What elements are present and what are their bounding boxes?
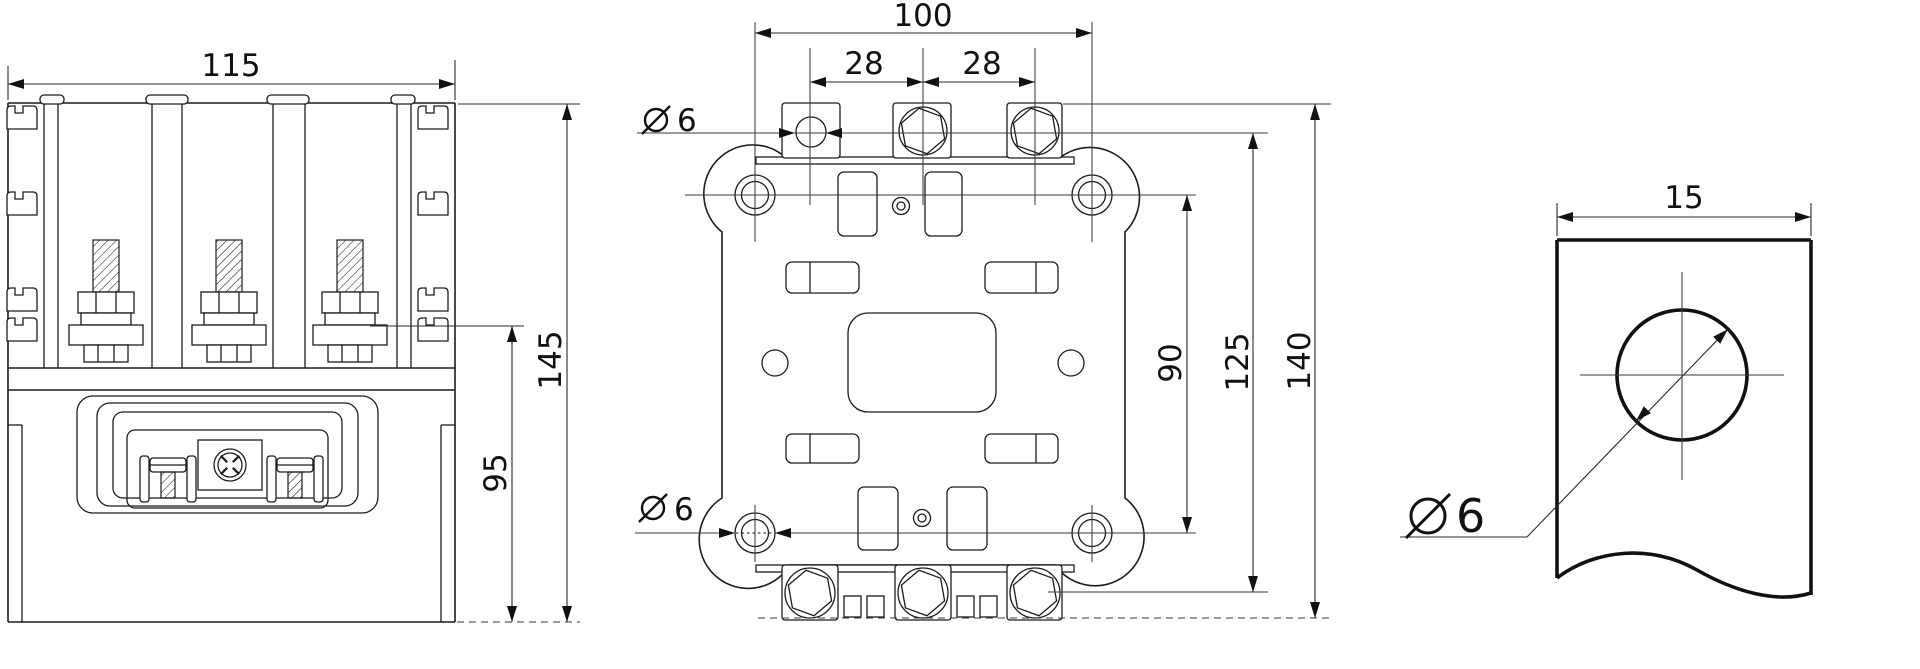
- drawing-sheet: 115 145 95: [0, 0, 1920, 669]
- dimension-label-width: 115: [201, 48, 260, 84]
- terminal-bolt: [192, 240, 266, 362]
- technical-drawing-canvas: 115 145 95: [0, 0, 1920, 669]
- barrier-cap: [146, 95, 188, 104]
- terminal-bolt: [69, 240, 143, 362]
- base-block: [8, 396, 455, 622]
- coil-center-screw: [198, 440, 262, 490]
- terminal-tab: [1557, 240, 1811, 597]
- dimension-label-hole-spacing-v: 90: [1153, 343, 1189, 382]
- dimension-label-tab-width: 15: [1664, 180, 1703, 216]
- pole-terminal-bolts: [69, 240, 387, 362]
- detail-view: 6 15: [1400, 180, 1811, 597]
- hole-dia-callout: 6: [1400, 329, 1728, 543]
- barrier-cap: [391, 95, 415, 104]
- dimension-label-pitch-right: 28: [962, 46, 1001, 82]
- terminal-bolt: [313, 240, 387, 362]
- barrier-cap: [267, 95, 309, 104]
- dimension-label-hole-spacing-h: 100: [893, 0, 952, 34]
- dimension-label-top-hole-dia: 6: [677, 103, 697, 139]
- coil-terminal-screw: [267, 456, 323, 502]
- bottom-terminal-pads: [782, 565, 1062, 620]
- coil-terminal-screw: [140, 456, 196, 502]
- diameter-symbol-icon: [1406, 494, 1450, 538]
- dimension-label-terminal-row-spacing: 125: [1220, 332, 1256, 391]
- dimension-label-terminal-height: 95: [478, 453, 514, 492]
- diameter-symbol-icon: [642, 106, 670, 134]
- barrier-cap: [40, 95, 64, 104]
- front-view: 115 145 95: [7, 48, 580, 622]
- dimension-label-overall-height: 140: [1282, 331, 1318, 390]
- bottom-view: 100 28 28 6: [635, 0, 1331, 620]
- detail-view-dimensions: 15: [1557, 180, 1811, 236]
- top-terminal-pads: [782, 103, 1062, 158]
- diameter-symbol-icon: [639, 494, 667, 522]
- dimension-label-hole-dia: 6: [1456, 489, 1485, 543]
- dimension-label-overall-height: 145: [533, 330, 569, 389]
- dimension-label-bottom-hole-dia: 6: [674, 492, 694, 528]
- dimension-label-pitch-left: 28: [844, 46, 883, 82]
